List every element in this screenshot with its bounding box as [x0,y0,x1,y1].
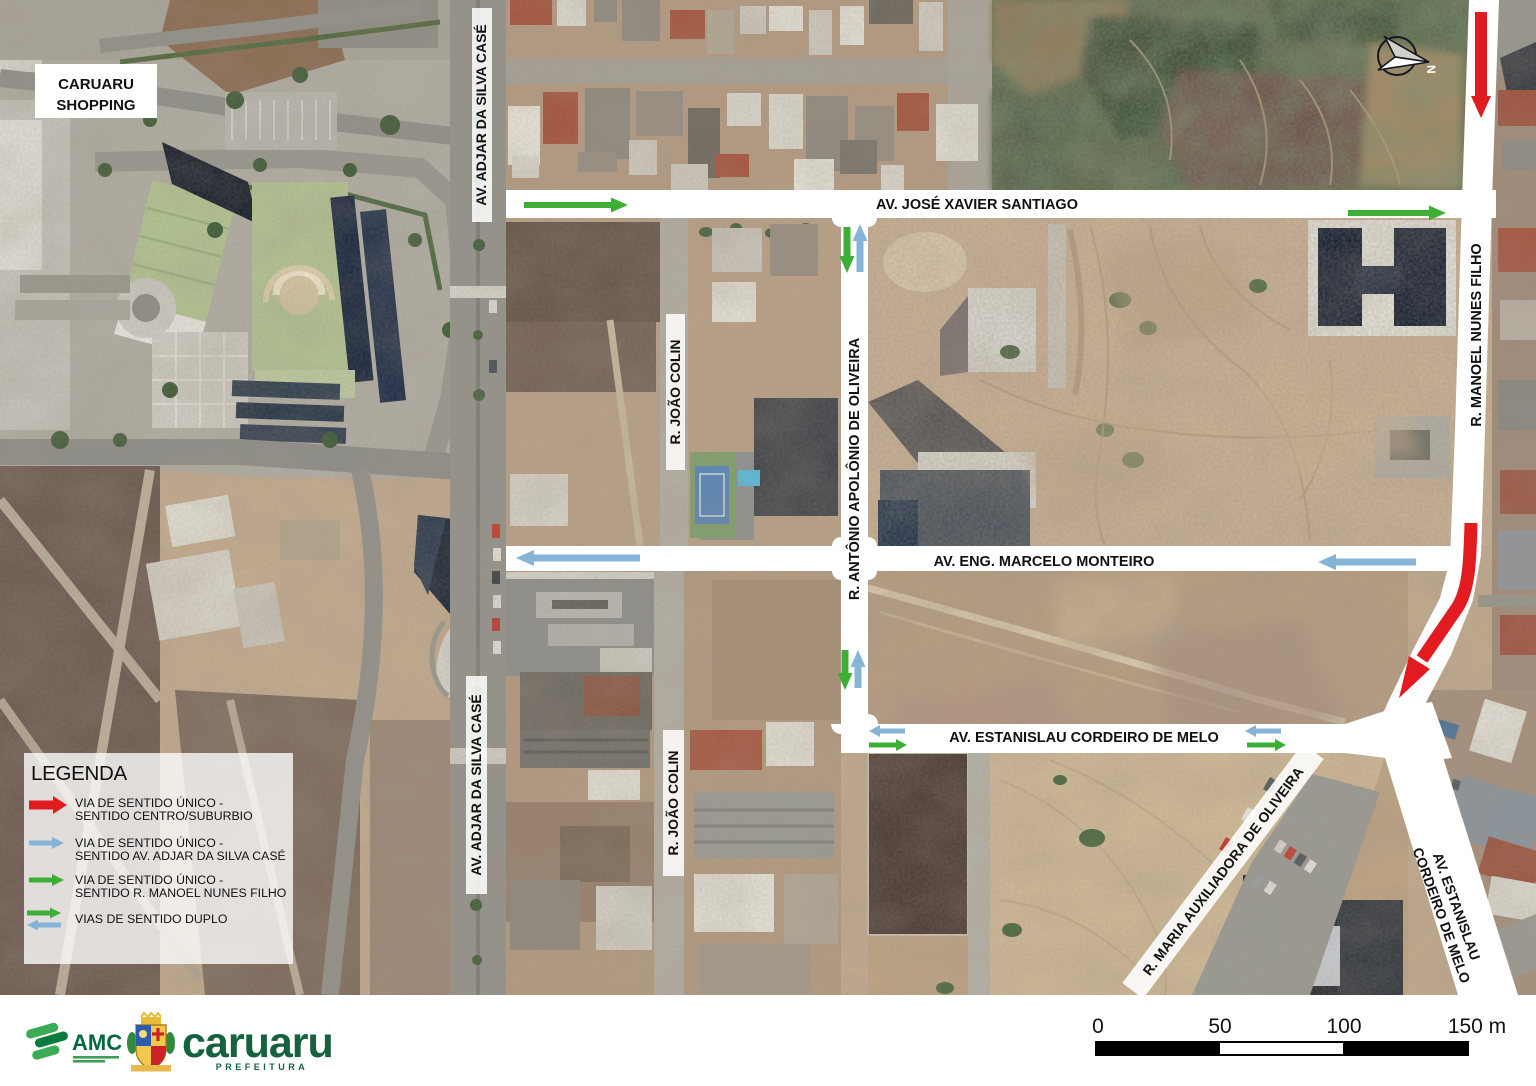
svg-text:R. JOÃO COLIN: R. JOÃO COLIN [666,339,683,444]
svg-text:SHOPPING: SHOPPING [56,97,135,114]
svg-text:R. ANTÔNIO APOLÔNIO DE OLIVEIR: R. ANTÔNIO APOLÔNIO DE OLIVEIRA [845,337,863,600]
svg-text:VIA DE SENTIDO ÚNICO -: VIA DE SENTIDO ÚNICO - [75,872,223,887]
svg-text:N: N [1424,65,1438,74]
svg-text:caruaru: caruaru [182,1019,333,1067]
svg-text:PREFEITURA: PREFEITURA [216,1062,309,1072]
svg-text:SENTIDO CENTRO/SUBURBIO: SENTIDO CENTRO/SUBURBIO [75,809,253,823]
svg-text:SENTIDO R. MANOEL NUNES FILHO: SENTIDO R. MANOEL NUNES FILHO [75,886,286,900]
svg-text:R. JOÃO COLIN: R. JOÃO COLIN [664,750,681,855]
svg-text:50: 50 [1208,1015,1231,1038]
svg-text:VIA DE SENTIDO ÚNICO -: VIA DE SENTIDO ÚNICO - [75,835,223,850]
svg-text:AV. ADJAR DA SILVA CASÉ: AV. ADJAR DA SILVA CASÉ [468,694,484,876]
svg-text:R. MANOEL NUNES FILHO: R. MANOEL NUNES FILHO [1469,243,1485,426]
svg-text:AV. ENG. MARCELO MONTEIRO: AV. ENG. MARCELO MONTEIRO [934,554,1155,570]
svg-text:VIAS DE SENTIDO DUPLO: VIAS DE SENTIDO DUPLO [75,912,227,926]
svg-text:AV. ADJAR DA SILVA CASÉ: AV. ADJAR DA SILVA CASÉ [473,24,489,206]
svg-text:AV. ESTANISLAU CORDEIRO DE MEL: AV. ESTANISLAU CORDEIRO DE MELO [949,730,1219,746]
svg-text:VIA DE SENTIDO ÚNICO -: VIA DE SENTIDO ÚNICO - [75,795,223,810]
svg-text:AMC: AMC [72,1030,122,1055]
svg-text:LEGENDA: LEGENDA [31,762,128,785]
svg-text:CARUARU: CARUARU [58,76,134,93]
svg-text:150 m: 150 m [1448,1015,1506,1038]
svg-text:SENTIDO AV. ADJAR DA SILVA CAS: SENTIDO AV. ADJAR DA SILVA CASÉ [75,848,286,863]
svg-text:AV. JOSÉ XAVIER SANTIAGO: AV. JOSÉ XAVIER SANTIAGO [876,196,1078,213]
svg-text:0: 0 [1092,1015,1104,1038]
svg-text:100: 100 [1326,1015,1361,1038]
